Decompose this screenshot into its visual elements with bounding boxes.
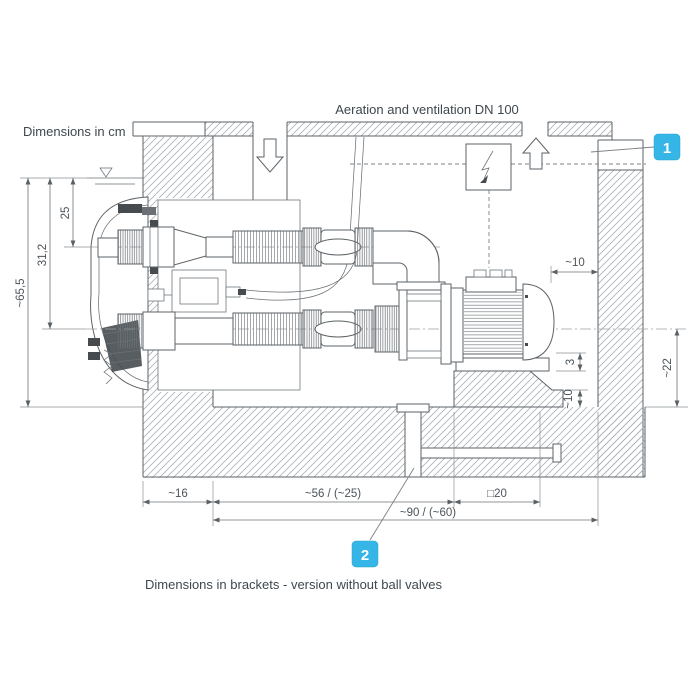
pump-union xyxy=(375,306,399,352)
electric-box xyxy=(466,144,511,268)
installation-diagram: 25 31,2 ~65,5 ~10 3 ~10 ~22 ~16 ~56 / (~… xyxy=(0,0,700,700)
dim-wall-to-right-wall: ~90 / (~60) xyxy=(400,507,456,519)
dim-axis-to-floor: ~22 xyxy=(662,358,674,378)
footer-note: Dimensions in brackets - version without… xyxy=(145,577,442,592)
callout-2-number: 2 xyxy=(361,547,369,564)
waterline-icon xyxy=(87,168,143,184)
dimensions-unit-note: Dimensions in cm xyxy=(23,124,126,139)
dim-water-to-nozzle: 25 xyxy=(60,207,72,220)
flex-hose-lower xyxy=(233,313,303,345)
dim-wall-thickness: ~16 xyxy=(168,488,188,500)
ball-valve-lower-handle xyxy=(315,321,361,337)
pump-plinth xyxy=(454,371,563,407)
dim-water-to-suction: 31,2 xyxy=(37,244,49,266)
terminal-box xyxy=(466,277,516,292)
callout-1: 1 xyxy=(591,134,680,160)
dim-foot-gap: 3 xyxy=(565,359,577,365)
dim-water-to-floor: ~65,5 xyxy=(15,278,27,307)
flex-hose-upper xyxy=(233,231,303,263)
callout-1-number: 1 xyxy=(663,140,671,157)
installation-diagram-page: 25 31,2 ~65,5 ~10 3 ~10 ~22 ~16 ~56 / (~… xyxy=(0,0,700,700)
pump-casing xyxy=(451,288,463,362)
dim-plinth-step: ~10 xyxy=(563,389,575,409)
motor-foot xyxy=(456,358,549,371)
dim-motor-to-wall: ~10 xyxy=(565,257,585,269)
aeration-label: Aeration and ventilation DN 100 xyxy=(335,102,519,117)
ball-valve-upper-handle xyxy=(315,239,361,255)
air-down-arrow-icon xyxy=(257,139,283,172)
dim-wall-to-plinth: ~56 / (~25) xyxy=(305,488,361,500)
drain-horizontal-pipe xyxy=(421,448,556,458)
dim-plinth-square: □20 xyxy=(487,488,507,500)
lower-suction-pipe xyxy=(118,306,399,352)
